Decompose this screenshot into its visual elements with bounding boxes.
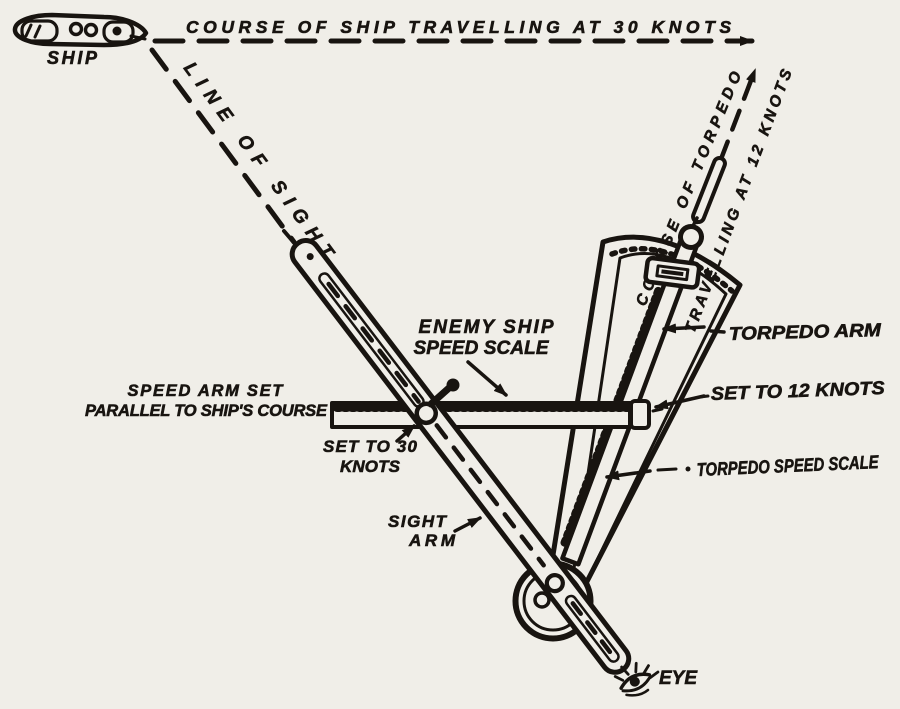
speed-arm-index-mark bbox=[653, 409, 662, 411]
sight-arm bbox=[287, 235, 634, 677]
torpedo-arm-label: TORPEDO ARM bbox=[729, 319, 882, 344]
torpedo-arm-clamp bbox=[645, 257, 700, 287]
clamp-knob bbox=[431, 379, 460, 405]
set-to-30-label-line1: SET TO 30 bbox=[323, 437, 418, 456]
diagram-canvas: SHIP COURSE OF SHIP TRAVELLING AT 30 KNO… bbox=[0, 0, 900, 709]
line-of-sight-line bbox=[152, 50, 294, 242]
torpedo-arm-label-dash bbox=[711, 331, 724, 332]
set-to-12-label: SET TO 12 KNOTS bbox=[710, 377, 885, 404]
enemy-speed-scale-arrow bbox=[468, 362, 506, 395]
ship-bow-turret-detail bbox=[113, 27, 122, 36]
sight-arm-arrow bbox=[455, 518, 480, 531]
ship-illustration bbox=[15, 15, 146, 45]
torpedo-director-diagram: SHIP COURSE OF SHIP TRAVELLING AT 30 KNO… bbox=[0, 0, 900, 709]
enemy-speed-scale-label-line2: SPEED SCALE bbox=[414, 338, 550, 359]
set-to-30-label-line2: KNOTS bbox=[340, 457, 401, 476]
course-of-ship-label: COURSE OF SHIP TRAVELLING AT 30 KNOTS bbox=[186, 17, 731, 37]
speed-arm-slider-block bbox=[631, 401, 649, 428]
torpedo-arm bbox=[539, 216, 716, 570]
speed-arm bbox=[332, 401, 662, 428]
speed-arm-label-line1: SPEED ARM SET bbox=[128, 382, 285, 400]
torpedo-speed-scale-dot bbox=[686, 467, 691, 472]
eye-label: EYE bbox=[659, 668, 698, 689]
line-of-sight-label: LINE OF SIGHT bbox=[179, 58, 338, 263]
enemy-speed-scale-label-line1: ENEMY SHIP bbox=[419, 317, 554, 338]
torpedo-arm-arrow bbox=[664, 327, 704, 329]
torpedo-speed-scale-label: TORPEDO SPEED SCALE bbox=[696, 451, 879, 480]
clamp-knob-head bbox=[447, 379, 460, 392]
ship-label: SHIP bbox=[47, 48, 98, 68]
sight-arm-label-line1: SIGHT bbox=[388, 512, 448, 531]
torpedo-speed-scale-dash bbox=[658, 469, 676, 470]
sight-arm-label-line2: ARM bbox=[408, 531, 456, 550]
speed-arm-label-line2: PARALLEL TO SHIP'S COURSE bbox=[85, 402, 328, 420]
